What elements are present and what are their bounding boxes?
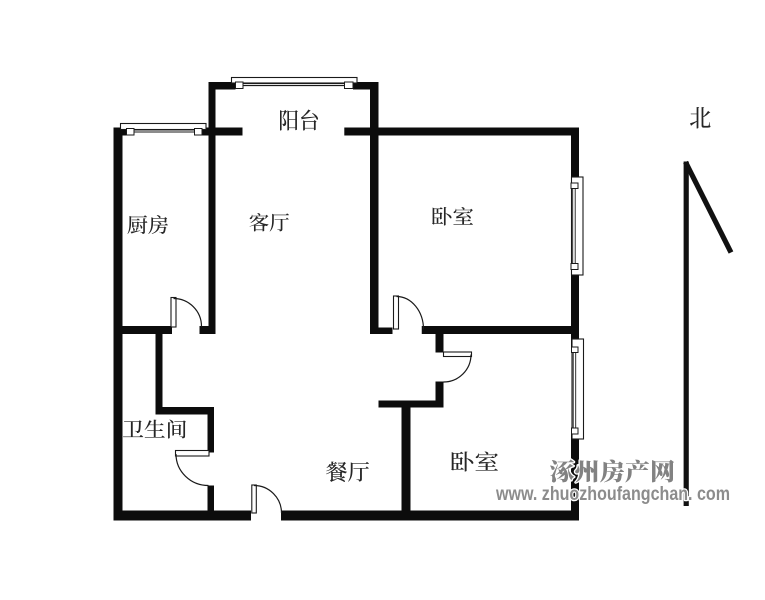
svg-text:www. zhuozhoufangchan. com: www. zhuozhoufangchan. com xyxy=(495,484,730,505)
